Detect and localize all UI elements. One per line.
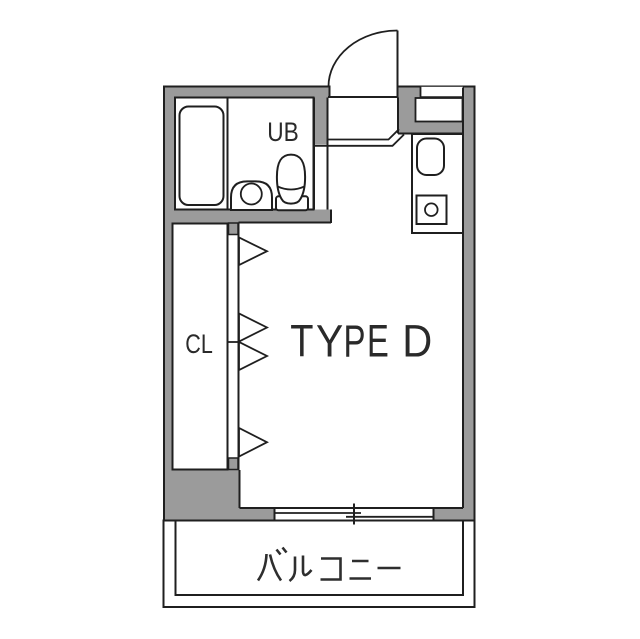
svg-text:E: E	[367, 316, 389, 367]
svg-text:T: T	[290, 316, 313, 367]
svg-text:D: D	[402, 316, 432, 367]
svg-text:P: P	[344, 316, 366, 367]
svg-text:CL: CL	[185, 329, 213, 359]
svg-text:Y: Y	[316, 316, 343, 367]
svg-text:UB: UB	[267, 117, 299, 147]
